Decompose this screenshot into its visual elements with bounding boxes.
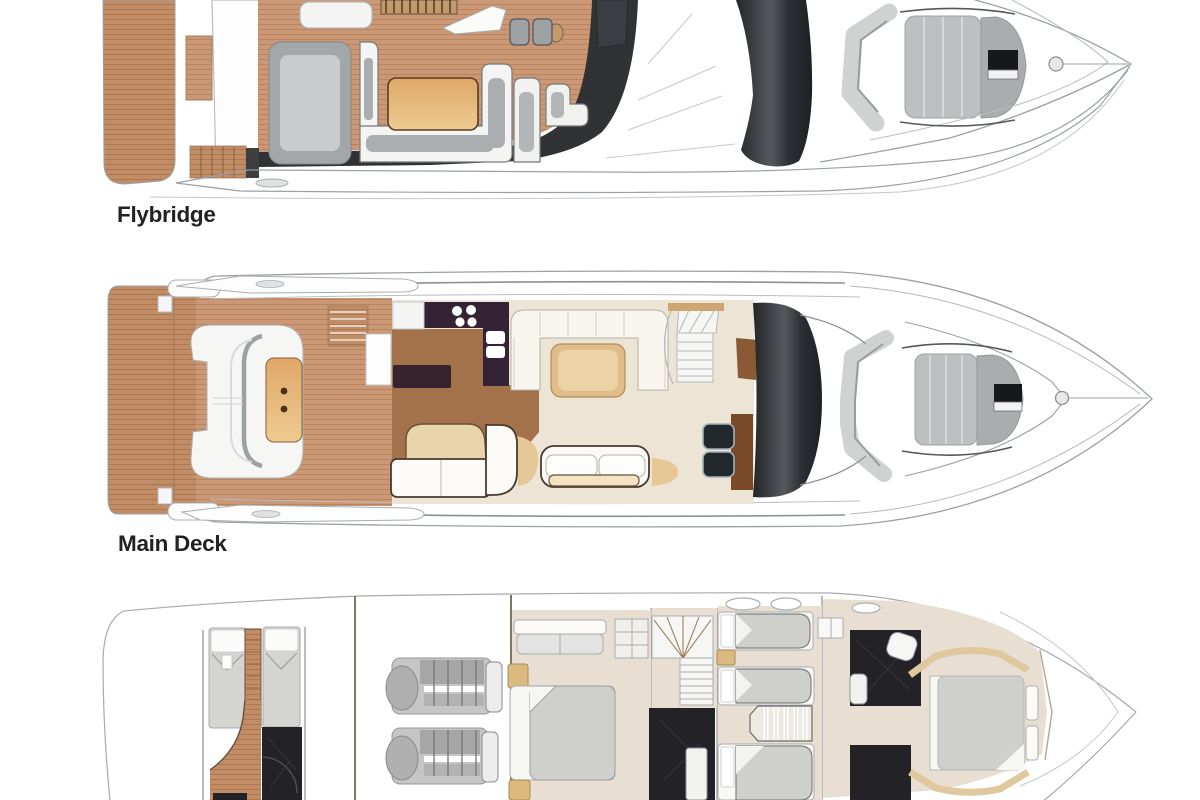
svg-text:Flybridge: Flybridge: [117, 202, 216, 227]
svg-text:Main Deck: Main Deck: [118, 531, 227, 556]
